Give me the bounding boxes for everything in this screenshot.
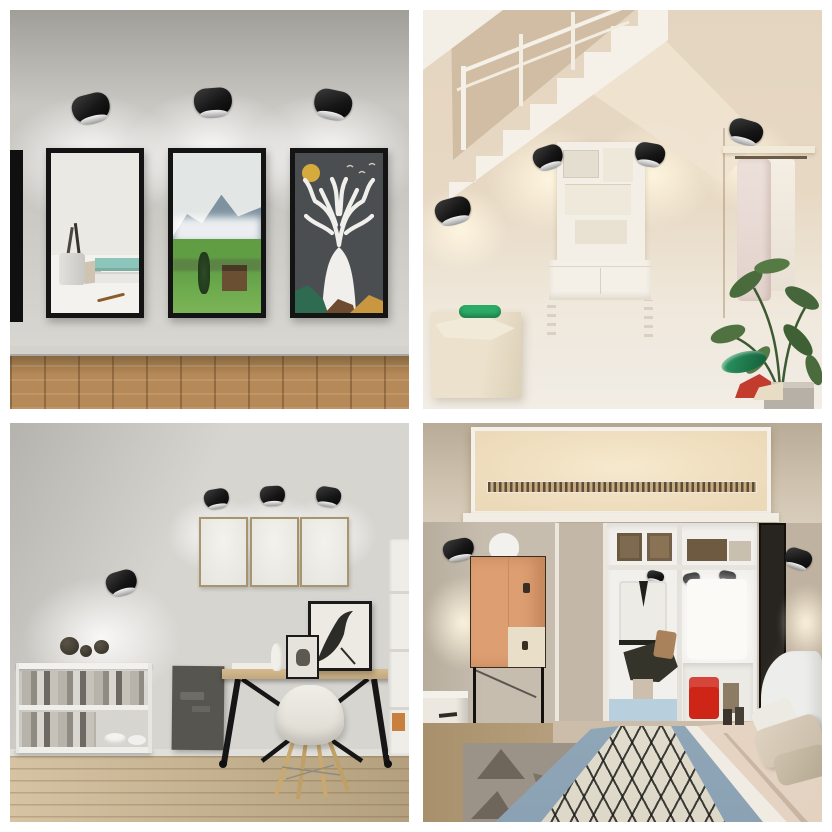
leaf	[782, 282, 822, 315]
photo-bedroom	[423, 423, 822, 822]
chair-leg-wires	[282, 765, 340, 779]
photo-gallery-wall	[10, 10, 409, 409]
artwork-deer	[295, 153, 383, 313]
book-teal	[95, 258, 139, 271]
book-white	[95, 272, 139, 283]
railing-post	[519, 34, 523, 106]
pinned-paper	[563, 150, 599, 178]
artwork-still-life	[51, 153, 139, 313]
artwork-mountain	[173, 153, 261, 313]
cabin	[222, 265, 247, 291]
bedside-item	[735, 707, 744, 725]
bird-branch	[341, 648, 355, 664]
desk-papers	[232, 663, 274, 669]
tree	[198, 252, 210, 294]
basket	[392, 713, 405, 731]
meadow	[173, 239, 261, 313]
small-art-frame	[286, 635, 319, 679]
bookcase-shelf	[388, 591, 409, 594]
bench	[431, 312, 521, 398]
photo-home-office	[10, 423, 409, 822]
leaf	[708, 321, 747, 347]
parquet-floor	[10, 356, 409, 409]
village-strip	[173, 259, 261, 272]
drawer-seam	[600, 268, 601, 294]
photo-collage	[0, 0, 832, 832]
shell-chair	[276, 685, 344, 745]
railing-post	[571, 12, 575, 70]
pinned-paper	[565, 184, 631, 215]
pinned-paper	[575, 220, 627, 244]
leaf	[779, 320, 818, 360]
deer-antlers	[305, 179, 373, 245]
desk-foot	[384, 760, 392, 768]
deer-art-svg	[295, 153, 383, 313]
desk-leg	[374, 679, 387, 763]
edge-frame	[10, 150, 23, 322]
drawer-line	[549, 266, 651, 267]
bedside-item	[723, 709, 732, 725]
desk-foot	[219, 760, 227, 768]
green-cushion	[459, 305, 501, 318]
tall-bookcase	[388, 539, 409, 755]
baseboard	[10, 346, 409, 356]
art-frame-still-life	[46, 148, 144, 318]
desk-leg	[224, 679, 238, 763]
railing-post	[461, 66, 466, 150]
bookcase-shelf	[388, 649, 409, 652]
bird-art-svg	[311, 604, 369, 668]
moodboard	[557, 142, 645, 262]
diffuser-jar	[59, 253, 85, 285]
photo-under-stairs	[423, 10, 822, 409]
birds	[347, 164, 375, 174]
vanity-desk	[549, 260, 651, 300]
art-frame-deer	[290, 148, 388, 318]
bookcase-shelf	[388, 707, 409, 710]
pinned-paper	[603, 148, 633, 182]
art-frame-mountain	[168, 148, 266, 318]
closet-shelf	[723, 146, 815, 153]
spotlight-lamp	[193, 87, 233, 118]
white-vase	[271, 643, 283, 671]
small-art-blob	[296, 649, 310, 666]
